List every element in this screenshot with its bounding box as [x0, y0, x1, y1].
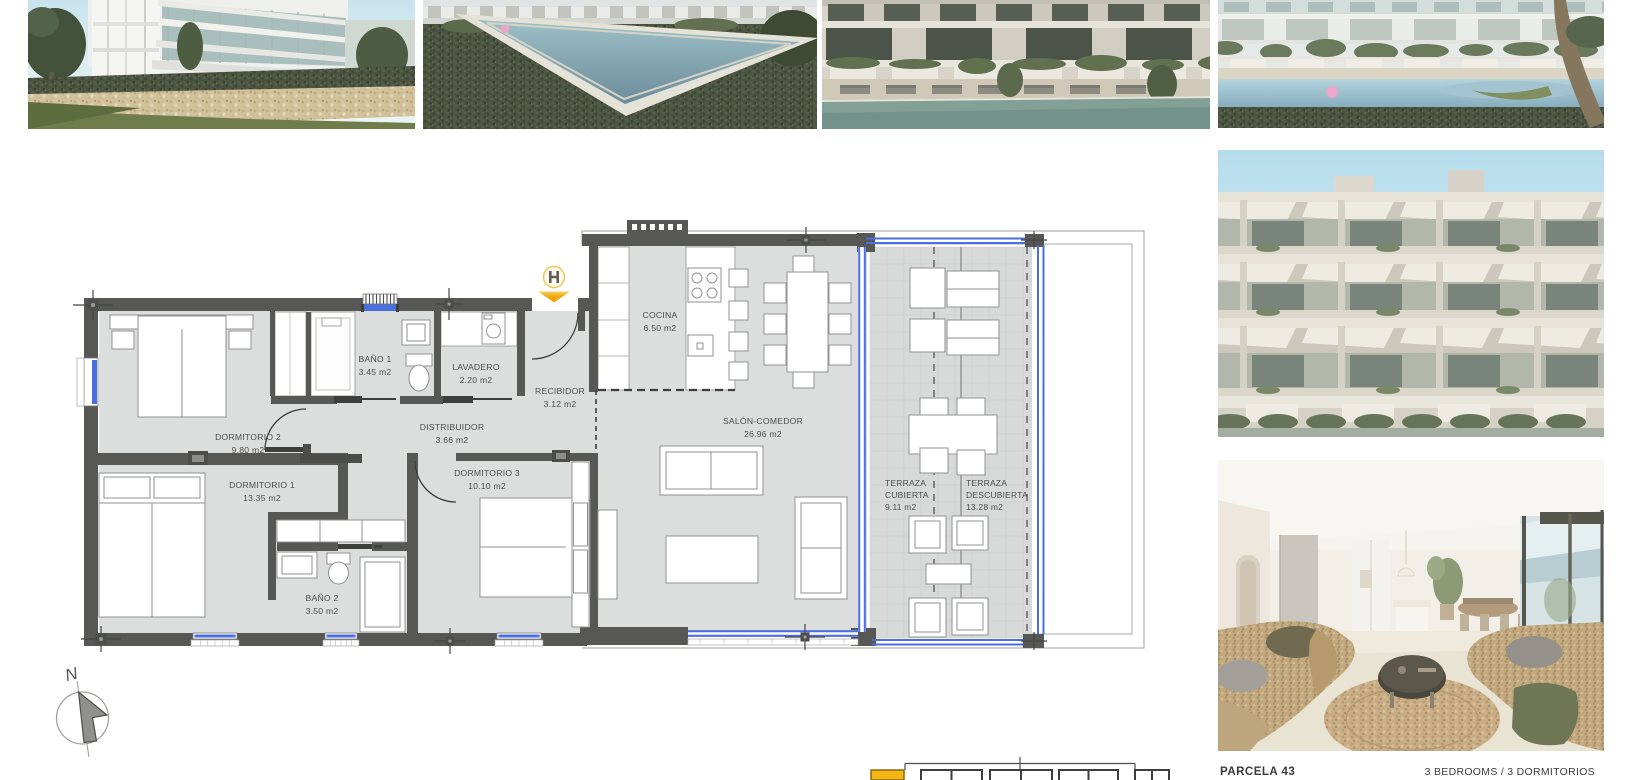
svg-text:CUBIERTA: CUBIERTA — [885, 490, 929, 500]
svg-text:BAÑO 2: BAÑO 2 — [305, 593, 338, 603]
svg-text:RECIBIDOR: RECIBIDOR — [535, 386, 585, 396]
svg-text:2.20 m2: 2.20 m2 — [460, 375, 493, 385]
svg-text:DISTRIBUIDOR: DISTRIBUIDOR — [420, 422, 485, 432]
svg-text:3.12 m2: 3.12 m2 — [544, 399, 577, 409]
svg-text:13.35 m2: 13.35 m2 — [243, 493, 281, 503]
svg-text:DORMITORIO 3: DORMITORIO 3 — [454, 468, 520, 478]
svg-text:TERRAZA: TERRAZA — [885, 478, 926, 488]
svg-text:SALÓN-COMEDOR: SALÓN-COMEDOR — [723, 416, 803, 426]
svg-text:TERRAZA: TERRAZA — [966, 478, 1007, 488]
svg-text:DORMITORIO 1: DORMITORIO 1 — [229, 480, 295, 490]
svg-text:9.11 m2: 9.11 m2 — [885, 502, 917, 512]
svg-text:PARCELA 43: PARCELA 43 — [1220, 766, 1295, 778]
svg-text:BAÑO 1: BAÑO 1 — [358, 354, 391, 364]
svg-text:9.80 m2: 9.80 m2 — [232, 445, 265, 455]
svg-text:3.50 m2: 3.50 m2 — [306, 606, 339, 616]
svg-text:26.96 m2: 26.96 m2 — [744, 429, 782, 439]
svg-text:10.10 m2: 10.10 m2 — [468, 481, 506, 491]
svg-text:DESCUBIERTA: DESCUBIERTA — [966, 490, 1028, 500]
svg-text:COCINA: COCINA — [643, 310, 678, 320]
svg-text:3.45 m2: 3.45 m2 — [359, 367, 392, 377]
svg-text:3.66 m2: 3.66 m2 — [436, 435, 469, 445]
svg-text:13.28 m2: 13.28 m2 — [966, 502, 1003, 512]
svg-text:6.50 m2: 6.50 m2 — [644, 323, 677, 333]
svg-text:LAVADERO: LAVADERO — [452, 362, 500, 372]
svg-text:DORMITORIO 2: DORMITORIO 2 — [215, 432, 281, 442]
svg-text:3 BEDROOMS / 3 DORMITORIOS: 3 BEDROOMS / 3 DORMITORIOS — [1425, 766, 1595, 778]
